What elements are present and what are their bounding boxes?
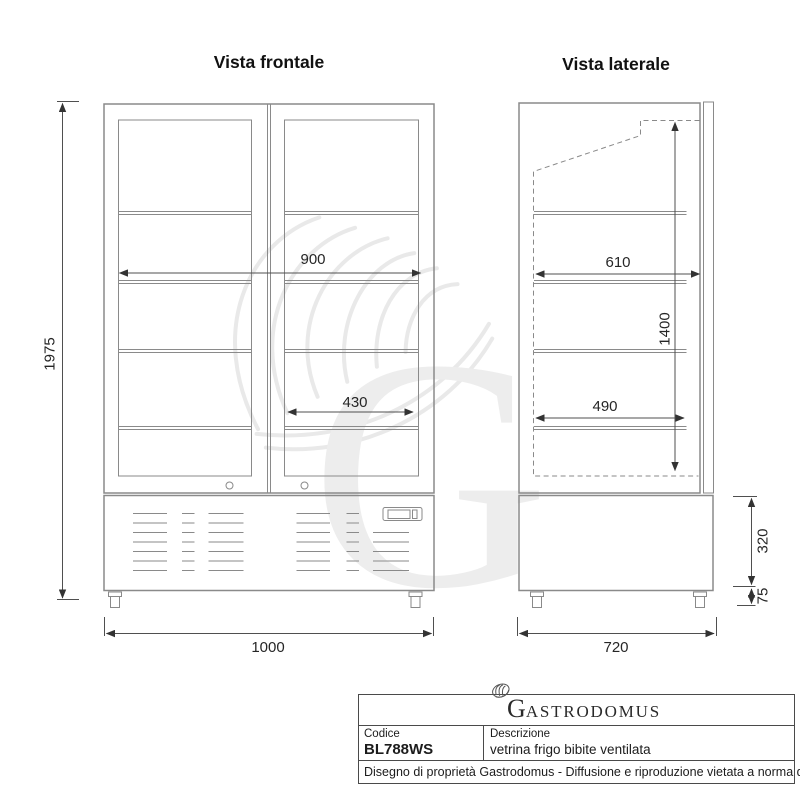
side-base-unit bbox=[519, 496, 713, 591]
technical-drawing-page: G bbox=[0, 0, 800, 800]
title-block-logo-row: GASTRODOMUS bbox=[359, 695, 794, 726]
side-casters bbox=[531, 592, 707, 608]
dim-label-front-shelf-width: 430 bbox=[342, 395, 367, 410]
codice-cell: Codice BL788WS bbox=[359, 726, 484, 760]
title-block-fields-row: Codice BL788WS Descrizione vetrina frigo… bbox=[359, 726, 794, 761]
base-vent-grille bbox=[347, 514, 360, 571]
front-base-unit bbox=[104, 496, 434, 591]
dim-label-side-total-depth: 720 bbox=[603, 640, 628, 655]
front-left-door-glass bbox=[119, 120, 252, 476]
chef-hat-icon bbox=[489, 682, 513, 702]
dim-label-front-total-width: 1000 bbox=[251, 640, 284, 655]
base-vent-grille bbox=[297, 514, 331, 571]
side-body-outline bbox=[519, 103, 700, 493]
dim-label-side-inner-depth: 610 bbox=[605, 255, 630, 270]
thermostat-control-panel bbox=[383, 508, 422, 521]
dimension-lines bbox=[57, 102, 757, 637]
dim-label-side-shelf-depth: 490 bbox=[592, 399, 617, 414]
front-right-door-glass bbox=[285, 120, 419, 476]
extension-lines bbox=[57, 102, 757, 637]
front-view-title: Vista frontale bbox=[214, 52, 325, 73]
dim-label-front-inner-width: 900 bbox=[300, 252, 325, 267]
descrizione-cell: Descrizione vetrina frigo bibite ventila… bbox=[484, 726, 794, 760]
dim-label-front-height: 1975 bbox=[43, 335, 58, 372]
base-vent-grille bbox=[209, 514, 244, 571]
side-view bbox=[519, 102, 714, 608]
base-vent-grille bbox=[133, 514, 167, 571]
title-block: GASTRODOMUS Codice BL788WS Descrizione v… bbox=[358, 694, 795, 784]
side-door-panel bbox=[704, 102, 714, 493]
brand-logo: GASTRODOMUS bbox=[492, 696, 661, 722]
base-vent-grille bbox=[373, 533, 409, 571]
base-vent-grille bbox=[182, 514, 195, 571]
title-block-footer: Disegno di proprietà Gastrodomus - Diffu… bbox=[359, 761, 794, 782]
dim-label-side-caster-height: 75 bbox=[756, 586, 771, 607]
descrizione-label: Descrizione bbox=[490, 728, 794, 740]
left-door-handle bbox=[226, 482, 233, 489]
codice-label: Codice bbox=[364, 728, 483, 740]
codice-value: BL788WS bbox=[364, 741, 483, 758]
dim-label-side-inner-height: 1400 bbox=[658, 310, 673, 347]
descrizione-value: vetrina frigo bibite ventilata bbox=[490, 742, 794, 757]
drawing-canvas bbox=[0, 0, 800, 800]
front-casters bbox=[109, 592, 423, 608]
front-left-shelves bbox=[119, 212, 251, 430]
dim-label-side-base-height: 320 bbox=[756, 526, 771, 555]
right-door-handle bbox=[301, 482, 308, 489]
side-view-title: Vista laterale bbox=[562, 54, 670, 75]
brand-logo-text: ASTRODOMUS bbox=[526, 703, 661, 720]
front-view bbox=[104, 104, 434, 608]
front-cabinet-outline bbox=[104, 104, 434, 493]
